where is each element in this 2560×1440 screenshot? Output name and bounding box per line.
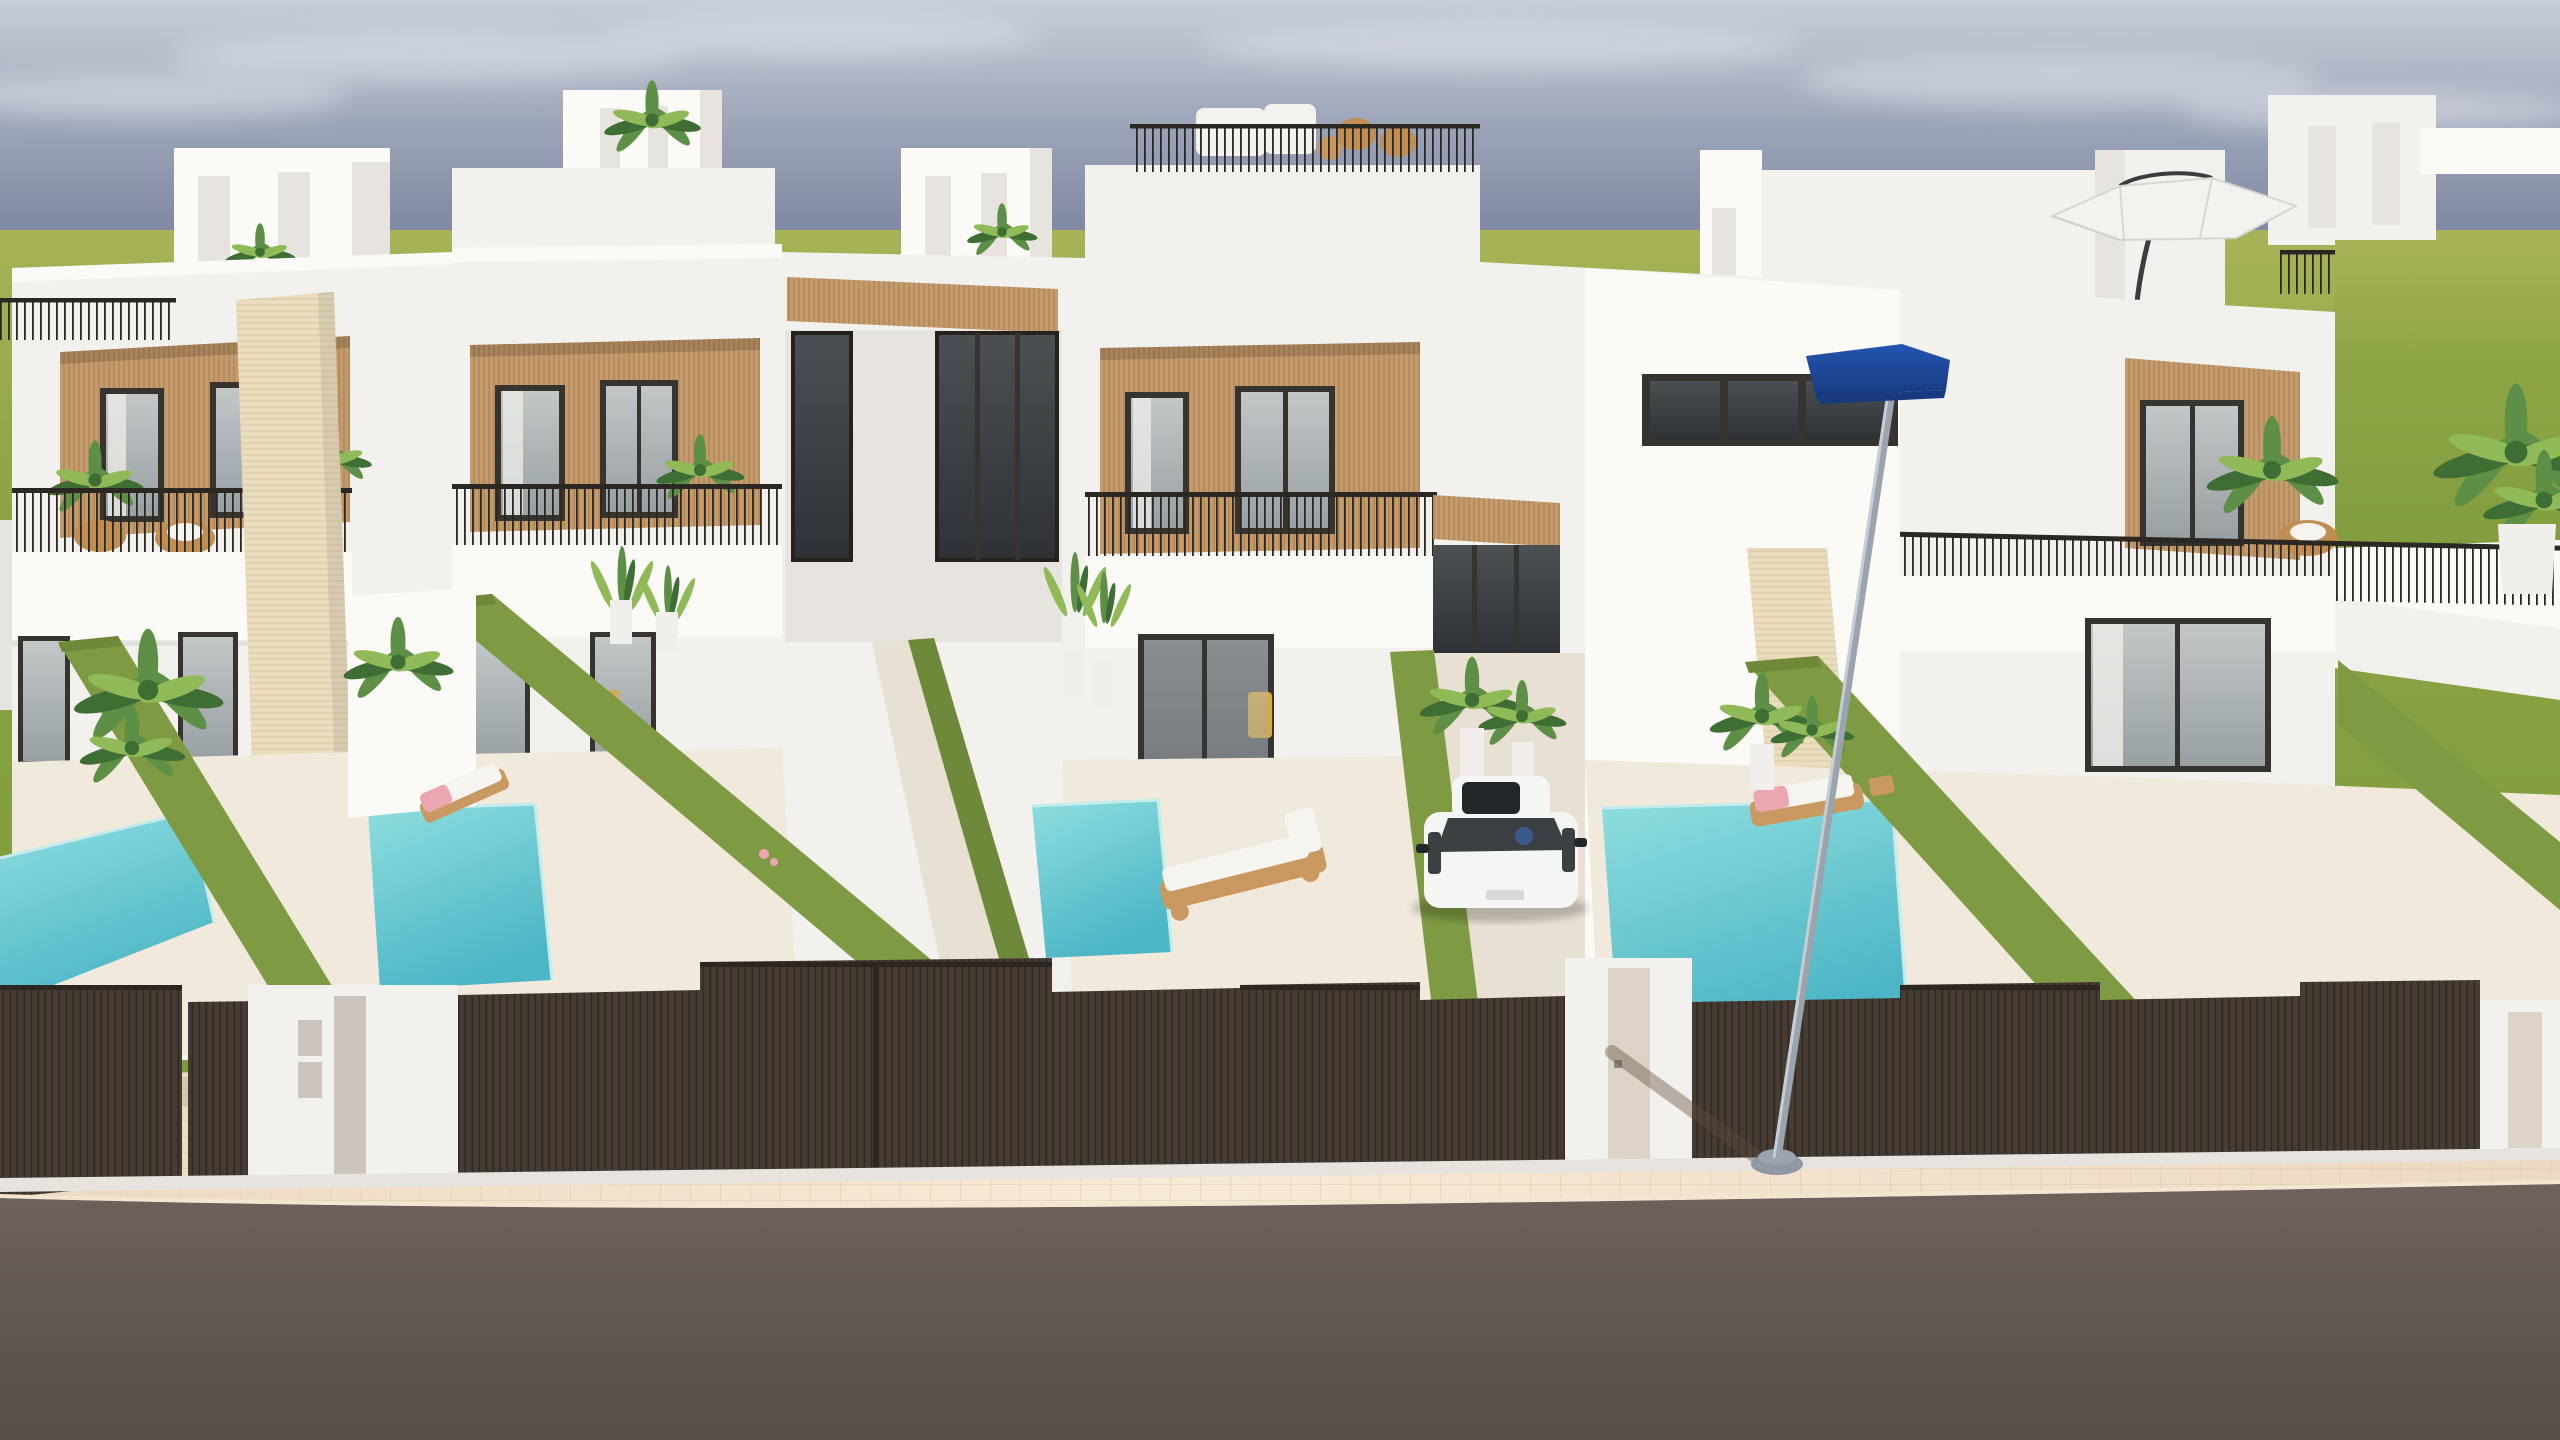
side-mirror bbox=[1416, 844, 1429, 853]
ground-floor-slider bbox=[2085, 618, 2271, 772]
balcony-railing bbox=[452, 484, 782, 546]
townhouse-render bbox=[0, 0, 2560, 1440]
rooftop-box-unit4 bbox=[1700, 150, 1762, 288]
gate-unit4 bbox=[1900, 982, 2100, 1162]
passage-glazing bbox=[1433, 545, 1560, 653]
plant-pot bbox=[656, 612, 678, 652]
side-mirror bbox=[1574, 838, 1587, 847]
gate-unit1 bbox=[0, 985, 182, 1198]
fence-panel bbox=[458, 990, 700, 1178]
road bbox=[0, 1182, 2560, 1440]
roof-door bbox=[925, 176, 951, 268]
roof-door bbox=[1712, 208, 1736, 286]
plant-pot bbox=[2498, 524, 2556, 594]
fence-panel bbox=[2100, 996, 2300, 1158]
entry-pillar-far-right bbox=[2480, 1000, 2560, 1152]
ground-floor-slider bbox=[1138, 634, 1274, 766]
gate-unit4r bbox=[2300, 980, 2480, 1155]
flower-pink bbox=[770, 858, 778, 866]
roof-door bbox=[2372, 123, 2400, 225]
driveway-gate bbox=[1420, 996, 1565, 1170]
pool-unit2 bbox=[368, 804, 552, 990]
ground-floor-window bbox=[18, 636, 70, 766]
render-canvas bbox=[0, 0, 2560, 1440]
gate-unit3 bbox=[1240, 982, 1420, 1172]
windshield bbox=[1436, 818, 1568, 852]
driver bbox=[1515, 827, 1533, 845]
sunroof bbox=[1462, 782, 1520, 814]
roof-parapet-unit3 bbox=[1085, 165, 1480, 265]
passage-wood-lintel bbox=[1433, 495, 1560, 547]
balcony-railing bbox=[1085, 492, 1437, 556]
plant-pot bbox=[610, 600, 632, 644]
entry-pillar-left bbox=[248, 985, 458, 1180]
entry-door-panel bbox=[2508, 1012, 2542, 1148]
plant-pot bbox=[1460, 728, 1484, 778]
roof-door bbox=[2308, 126, 2336, 228]
roof-railing-left bbox=[0, 298, 176, 340]
entry-door-panel bbox=[334, 996, 366, 1178]
roof-terrace-railing bbox=[1130, 124, 1480, 172]
pool-unit3 bbox=[1032, 800, 1172, 958]
letterbox bbox=[298, 1020, 322, 1056]
fence-panel bbox=[1052, 988, 1240, 1174]
flower-pink bbox=[759, 849, 769, 859]
plant-pot bbox=[1750, 744, 1774, 790]
license-plate bbox=[1486, 890, 1524, 900]
plant-pot bbox=[1092, 662, 1112, 706]
plant-pot bbox=[1064, 650, 1084, 696]
letterbox bbox=[298, 1062, 322, 1098]
